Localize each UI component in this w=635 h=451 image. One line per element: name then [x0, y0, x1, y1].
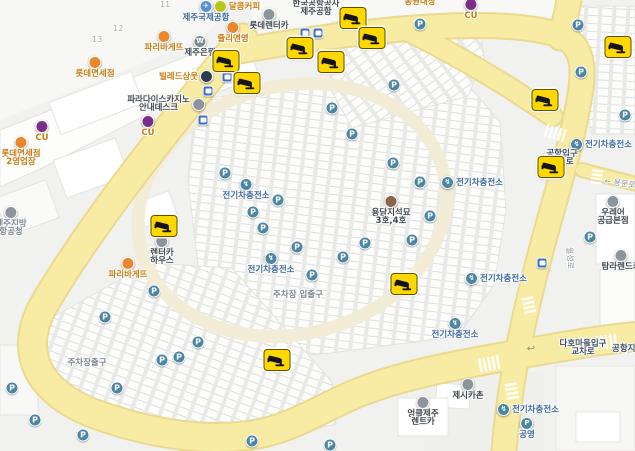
parking-icon[interactable]: P	[246, 435, 259, 448]
poi-label: CU	[464, 12, 477, 20]
poi-label-line: 전기차충전소	[223, 192, 270, 200]
poi-label-line: 쥴리앤영	[217, 35, 248, 43]
casino-info-icon	[192, 98, 205, 111]
bank-icon: ₩	[194, 35, 207, 48]
parking-icon[interactable]: P	[337, 251, 350, 264]
poi-label-line: 전기차충전소	[585, 141, 632, 149]
airport-icon: ✈	[199, 0, 212, 13]
rentacar-icon	[417, 396, 430, 409]
poi-julie-and-young[interactable]: 쥴리앤영	[217, 21, 248, 43]
parking-icon[interactable]: P	[99, 311, 112, 324]
poi-label-line: 주차장출구	[67, 359, 106, 367]
poi-label: 전기차충전소	[432, 331, 479, 339]
poi-urea-supply-main[interactable]: 우레어공급본점	[597, 195, 628, 225]
ev-charger-icon: ↯	[264, 252, 277, 265]
parking-icon[interactable]: P	[326, 102, 339, 115]
poi-label-line: 공항지하차도	[612, 345, 635, 353]
poi-ev-charging-station-7[interactable]: ↯전기차충전소	[497, 403, 559, 416]
parking-icon[interactable]: P	[29, 414, 42, 427]
poi-label-line: 롯데면세점	[75, 70, 114, 78]
poi-label: 전기차충전소	[248, 266, 295, 274]
parking-icon[interactable]: P	[388, 79, 401, 92]
ev-charger-icon: ↯	[465, 272, 478, 285]
poi-label: 파라다이스카지노안내데스크	[127, 96, 190, 112]
poi-label: 주차장출구	[67, 359, 106, 367]
parking-icon[interactable]: P	[111, 382, 124, 395]
gate-number-label: 13	[92, 35, 102, 44]
poi-label-line: 하우스	[150, 257, 173, 265]
poi-label-line: 안내데스크	[139, 104, 178, 112]
bus-glyph	[302, 31, 308, 36]
poi-label-line: 파리바게뜨	[108, 271, 147, 279]
poi-label-line: 렌트카	[411, 418, 434, 426]
poi-ville-de-sangut[interactable]: 빌레드상웃	[159, 70, 213, 83]
poi-label: 쥴리앤영	[217, 35, 248, 43]
poi-label: 전기차충전소	[512, 406, 559, 414]
cctv-icon[interactable]	[605, 36, 632, 58]
poi-label-line: 전기차충전소	[480, 275, 527, 283]
poi-label: 주차장 입출구	[273, 291, 323, 299]
poi-label: 제시카촌	[452, 392, 483, 400]
poi-uncle-jeju-rentacar[interactable]: 엉클제주렌트카	[407, 396, 438, 426]
poi-rentacar-house[interactable]: 렌터카하우스	[150, 235, 173, 265]
bus-glyph	[205, 89, 211, 94]
bus-glyph	[315, 31, 321, 36]
cctv-icon[interactable]	[340, 7, 367, 29]
poi-label: 렌터카하우스	[150, 249, 173, 265]
parking-icon[interactable]: P	[359, 237, 372, 250]
poi-label-line: 2영업장	[6, 158, 35, 166]
cctv-icon[interactable]	[234, 72, 261, 94]
bus-stop-icon[interactable]	[537, 258, 548, 269]
poi-ev-charging-station-5[interactable]: ↯전기차충전소	[465, 272, 527, 285]
poi-label-line: 제주공항	[300, 8, 331, 16]
cctv-icon[interactable]	[151, 215, 178, 237]
poi-paradise-casino-info-desk[interactable]: 파라다이스카지노안내데스크	[127, 96, 205, 112]
bus-glyph	[539, 261, 545, 266]
poi-label-line: 교차로	[571, 348, 594, 356]
poi-lotte-duty-free[interactable]: 롯데면세점	[75, 56, 114, 78]
poi-ev-charging-station-4[interactable]: ↯전기차충전소	[570, 138, 632, 151]
parking-icon[interactable]: P	[77, 429, 90, 442]
parking-icon[interactable]: P	[6, 382, 19, 395]
hotel-icon	[200, 70, 213, 83]
poi-label: 롯데면세점	[75, 70, 114, 78]
road-label-wolseong-ro: 월성로	[564, 247, 576, 270]
heritage-site-icon	[384, 195, 397, 208]
poi-label-line: 공영	[519, 431, 535, 439]
rentacar-icon	[614, 249, 627, 262]
poi-cu-store-1[interactable]: CU	[141, 115, 154, 137]
poi-label-line: 제주은행	[184, 49, 215, 57]
poi-public-parking[interactable]: P공영	[519, 417, 535, 439]
poi-label: 전기차충전소	[223, 192, 270, 200]
parking-icon[interactable]: P	[572, 19, 585, 32]
poi-label-line: 롯데렌터카	[249, 22, 288, 30]
poi-paris-baguette-1[interactable]: 파리바게뜨	[144, 30, 183, 52]
cctv-icon[interactable]	[318, 51, 345, 73]
uturn-arrow-road-marking: ↩	[527, 344, 535, 355]
bus-stop-icon[interactable]	[313, 28, 324, 39]
parking-icon[interactable]: P	[414, 176, 427, 189]
bus-glyph	[224, 75, 230, 80]
poi-label-line: 전기차충전소	[248, 266, 295, 274]
poi-ev-charging-station-3[interactable]: ↯전기차충전소	[441, 176, 503, 189]
poi-label-line: CU	[141, 129, 154, 137]
parking-icon[interactable]: P	[247, 206, 260, 219]
cctv-icon[interactable]	[264, 349, 291, 371]
cctv-icon[interactable]	[359, 27, 386, 49]
duty-free-icon	[88, 56, 101, 69]
poi-dongwon-daejang[interactable]: 동원대장	[404, 0, 435, 6]
poi-label: 다호마을입구교차로	[560, 340, 607, 356]
poi-lotte-rentacar[interactable]: 롯데렌터카	[249, 8, 288, 30]
poi-label: 탐라렌드카	[601, 263, 635, 271]
poi-daho-village-entrance-intersection[interactable]: 다호마을입구교차로	[560, 340, 607, 356]
parking-icon[interactable]: P	[272, 194, 285, 207]
poi-label-line: 빌레드상웃	[159, 73, 198, 81]
poi-label-line: 파리바게뜨	[144, 44, 183, 52]
gate-number-label: 12	[113, 24, 123, 33]
duty-free-icon	[14, 136, 27, 149]
poi-label-line: CU	[464, 12, 477, 20]
poi-label-line: 항공청	[0, 228, 23, 236]
poi-label: 제주은행	[184, 49, 215, 57]
bakery-icon	[121, 257, 134, 270]
parking-icon[interactable]: P	[414, 18, 427, 31]
convenience-store-icon	[141, 115, 154, 128]
bus-stop-icon[interactable]	[198, 115, 209, 126]
poi-label: 빌레드상웃	[159, 73, 198, 81]
poi-label-line: 전기차충전소	[432, 331, 479, 339]
poi-label: 제주지방항공청	[0, 220, 27, 236]
poi-jeju-bank[interactable]: ₩제주은행	[184, 35, 215, 57]
parking-icon[interactable]: P	[575, 66, 588, 79]
parking-icon[interactable]: P	[387, 157, 400, 170]
poi-ev-charging-station-1[interactable]: ↯전기차충전소	[223, 178, 270, 200]
poi-cu-store-3[interactable]: CU	[464, 0, 477, 20]
poi-label: 전기차충전소	[585, 141, 632, 149]
poi-label-line: 탐라렌드카	[601, 263, 635, 271]
parking-icon[interactable]: P	[424, 210, 437, 223]
ev-charger-icon: ↯	[239, 178, 252, 191]
gate-number-label: 11	[160, 0, 170, 9]
poi-tamna-rentacar[interactable]: 탐라렌드카	[601, 249, 635, 271]
parking-icon[interactable]: P	[406, 234, 419, 247]
poi-label: 롯데렌터카	[249, 22, 288, 30]
cctv-icon[interactable]	[538, 156, 565, 178]
poi-label: 한국공항공사제주공항	[293, 0, 340, 16]
poi-airport-underpass[interactable]: 공항지하차도	[612, 345, 635, 353]
parking-icon[interactable]: P	[156, 354, 169, 367]
cctv-icon[interactable]	[213, 50, 240, 72]
poi-label: 공영	[519, 431, 535, 439]
poi-label-line: 제시카촌	[452, 392, 483, 400]
poi-label: 롯데면세점2영업장	[1, 150, 40, 166]
poi-label: 동원대장	[404, 0, 435, 6]
parking-icon: P	[520, 417, 533, 430]
restaurant-icon	[462, 378, 475, 391]
poi-label: 공항지하차도	[612, 345, 635, 353]
cctv-icon[interactable]	[287, 37, 314, 59]
poi-parking-lot-exit-label[interactable]: 주차장출구	[67, 359, 106, 367]
bus-stop-icon[interactable]	[222, 72, 233, 83]
ev-charger-icon: ↯	[497, 403, 510, 416]
convenience-store-icon	[464, 0, 477, 11]
parking-icon[interactable]: P	[619, 109, 632, 122]
poi-yongdam-dolmen-3-4[interactable]: 용담지석묘3호,4호	[371, 195, 410, 225]
poi-label-line: 전기차충전소	[512, 406, 559, 414]
parking-icon[interactable]: P	[584, 231, 597, 244]
rentacar-icon	[262, 8, 275, 21]
poi-label: 엉클제주렌트카	[407, 410, 438, 426]
poi-label: 우레어공급본점	[597, 209, 628, 225]
poi-label: 파리바게뜨	[108, 271, 147, 279]
parking-icon[interactable]: P	[148, 285, 161, 298]
poi-label: 전기차충전소	[456, 179, 503, 187]
poi-jeju-regional-aviation-office[interactable]: 제주지방항공청	[0, 206, 27, 236]
cctv-icon[interactable]	[391, 273, 418, 295]
store-icon	[607, 195, 620, 208]
poi-ev-charging-station-6[interactable]: ↯전기차충전소	[432, 317, 479, 339]
parking-icon[interactable]: P	[306, 269, 319, 282]
ev-charger-icon: ↯	[448, 317, 461, 330]
parking-icon[interactable]: P	[257, 222, 270, 235]
poi-label-line: 공급본점	[597, 217, 628, 225]
parking-icon[interactable]: P	[346, 128, 359, 141]
bakery-icon	[157, 30, 170, 43]
poi-label: 용담지석묘3호,4호	[371, 209, 410, 225]
map-viewport[interactable]: 달콤커피✈제주국제공항한국공항공사제주공항롯데렌터카쥴리앤영₩제주은행파리바게뜨…	[0, 0, 635, 451]
poi-label-line: 3호,4호	[376, 217, 407, 225]
bus-stop-icon[interactable]	[203, 86, 214, 97]
poi-korea-airports-corp-jeju[interactable]: 한국공항공사제주공항	[293, 0, 340, 16]
poi-label: CU	[141, 129, 154, 137]
poi-label-line: 동원대장	[404, 0, 435, 6]
poi-parking-lot-entrance-exit-label[interactable]: 주차장 입출구	[273, 291, 323, 299]
parking-icon[interactable]: P	[192, 336, 205, 349]
bus-glyph	[200, 118, 206, 123]
poi-label: 파리바게뜨	[144, 44, 183, 52]
shop-icon	[227, 21, 240, 34]
poi-label: 전기차충전소	[480, 275, 527, 283]
parking-icon[interactable]: P	[173, 351, 186, 364]
convenience-store-icon	[35, 120, 48, 133]
ev-charger-icon: ↯	[441, 176, 454, 189]
poi-lotte-duty-free-branch2[interactable]: 롯데면세점2영업장	[1, 136, 40, 166]
poi-jeju-intl-airport[interactable]: ✈제주국제공항	[183, 0, 230, 22]
poi-label-line: 전기차충전소	[456, 179, 503, 187]
poi-ev-charging-station-2[interactable]: ↯전기차충전소	[248, 252, 295, 274]
poi-jessica-chon[interactable]: 제시카촌	[452, 378, 483, 400]
poi-label-line: 주차장 입출구	[273, 291, 323, 299]
government-office-icon	[5, 206, 18, 219]
parking-icon[interactable]: P	[324, 439, 337, 451]
poi-paris-baguette-2[interactable]: 파리바게뜨	[108, 257, 147, 279]
cctv-icon[interactable]	[532, 89, 559, 111]
